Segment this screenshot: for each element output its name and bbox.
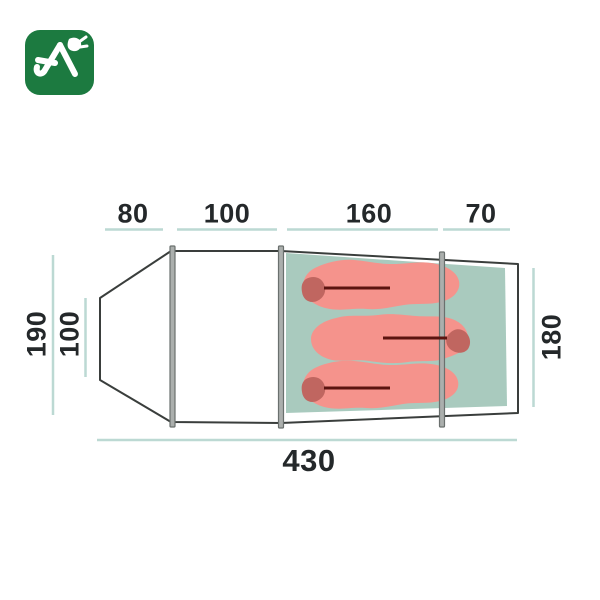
dim-label-total-length: 430 (282, 443, 335, 479)
dim-label-rear-length: 70 (465, 199, 496, 230)
sleeping-bag-top (303, 260, 459, 310)
tent-floorplan-screenshot: 80 100 160 70 190 100 180 430 (0, 0, 600, 600)
dim-label-sleeping-area-width: 180 (537, 314, 568, 361)
sleeping-bag-bottom (303, 361, 458, 409)
logo-crossbar (38, 60, 55, 63)
logo-axe-head (68, 38, 82, 52)
dim-label-porch-inner-width: 100 (55, 311, 86, 358)
dim-label-outer-width: 190 (22, 311, 53, 358)
dim-label-sleeping-area-length: 160 (346, 199, 393, 230)
pole-middle (279, 246, 284, 428)
pole-front (170, 246, 175, 427)
floorplan-canvas (0, 0, 600, 600)
logo-axe-prong-bottom (80, 46, 87, 47)
dim-label-porch-tip-length: 80 (117, 199, 148, 230)
brand-logo (25, 30, 94, 95)
dim-label-porch-length: 100 (204, 199, 251, 230)
